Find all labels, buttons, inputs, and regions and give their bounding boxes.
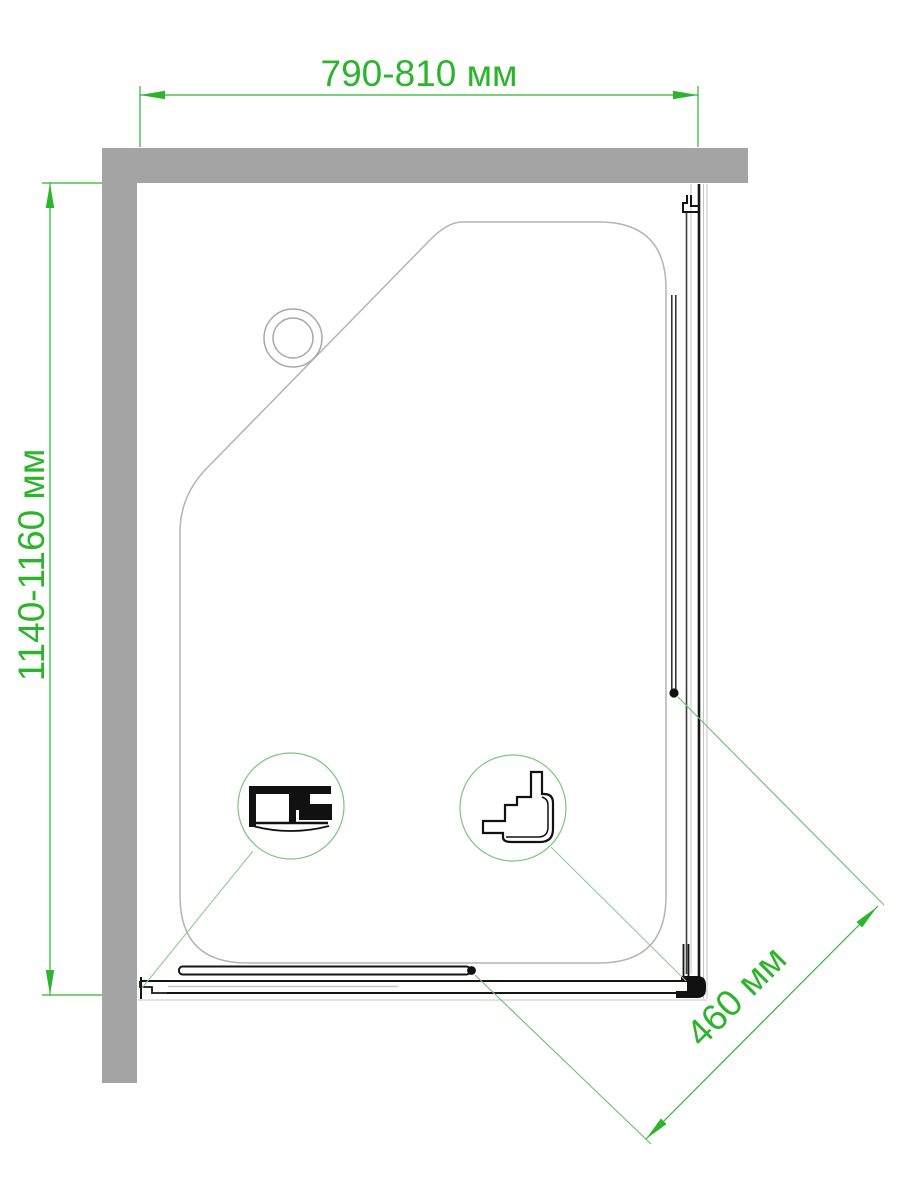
bottom-door-knob: [467, 966, 476, 975]
width-dim-arrow-left: [140, 91, 165, 99]
wall-profile-divider-bar: [289, 791, 296, 824]
corner-profile-detail: [460, 755, 686, 981]
drawing-canvas: 790-810 мм 1140-1160 мм 460 мм: [0, 0, 900, 1200]
bottom-rail-left-step: [140, 981, 167, 993]
side-door-knob: [669, 688, 678, 697]
bottom-sliding-door: [179, 966, 476, 975]
door-dim-arrow-lower: [646, 1119, 667, 1140]
drain-icon: [264, 309, 322, 367]
door-dim-arrow-upper: [857, 907, 878, 928]
width-dim-arrow-right: [673, 91, 698, 99]
wall-profile-left-bar: [249, 786, 256, 827]
side-sliding-door: [669, 295, 678, 698]
top-wall: [102, 148, 748, 183]
corner-post-body: [676, 976, 706, 998]
door-dim-ext-upper: [678, 697, 884, 905]
bottom-door-glass: [179, 967, 470, 975]
height-dim-arrow-top: [46, 183, 54, 208]
drain-inner-circle: [273, 318, 313, 358]
height-dim-arrow-bottom: [46, 970, 54, 995]
width-dimension-label: 790-810 мм: [321, 53, 518, 94]
left-wall: [102, 148, 137, 1083]
wall-profile-detail: [142, 753, 344, 988]
height-dimension-label: 1140-1160 мм: [11, 449, 52, 682]
height-dimension: 1140-1160 мм: [11, 183, 102, 995]
width-dimension: 790-810 мм: [140, 53, 698, 147]
